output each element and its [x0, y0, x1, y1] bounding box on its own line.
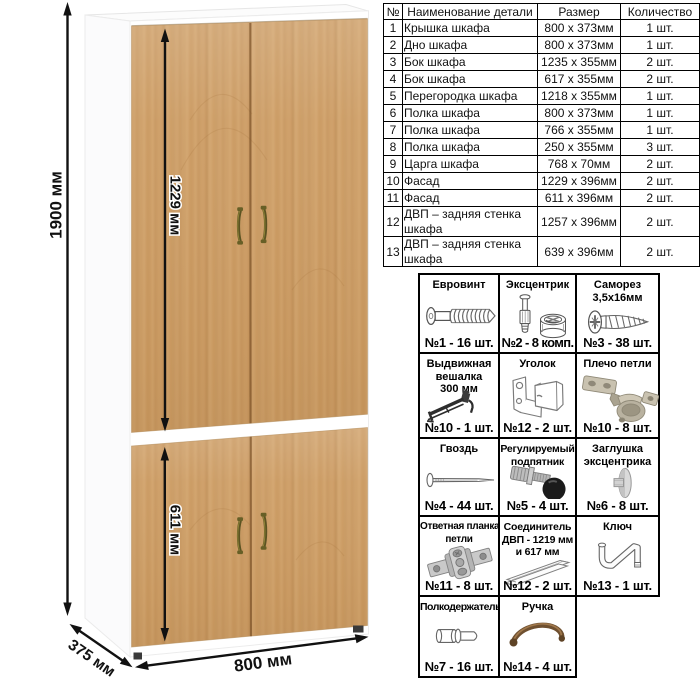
svg-text:1229 мм: 1229 мм — [167, 176, 184, 236]
svg-text:611 мм: 611 мм — [167, 505, 184, 556]
svg-text:375 мм: 375 мм — [65, 636, 118, 680]
svg-text:1900 мм: 1900 мм — [47, 171, 66, 239]
